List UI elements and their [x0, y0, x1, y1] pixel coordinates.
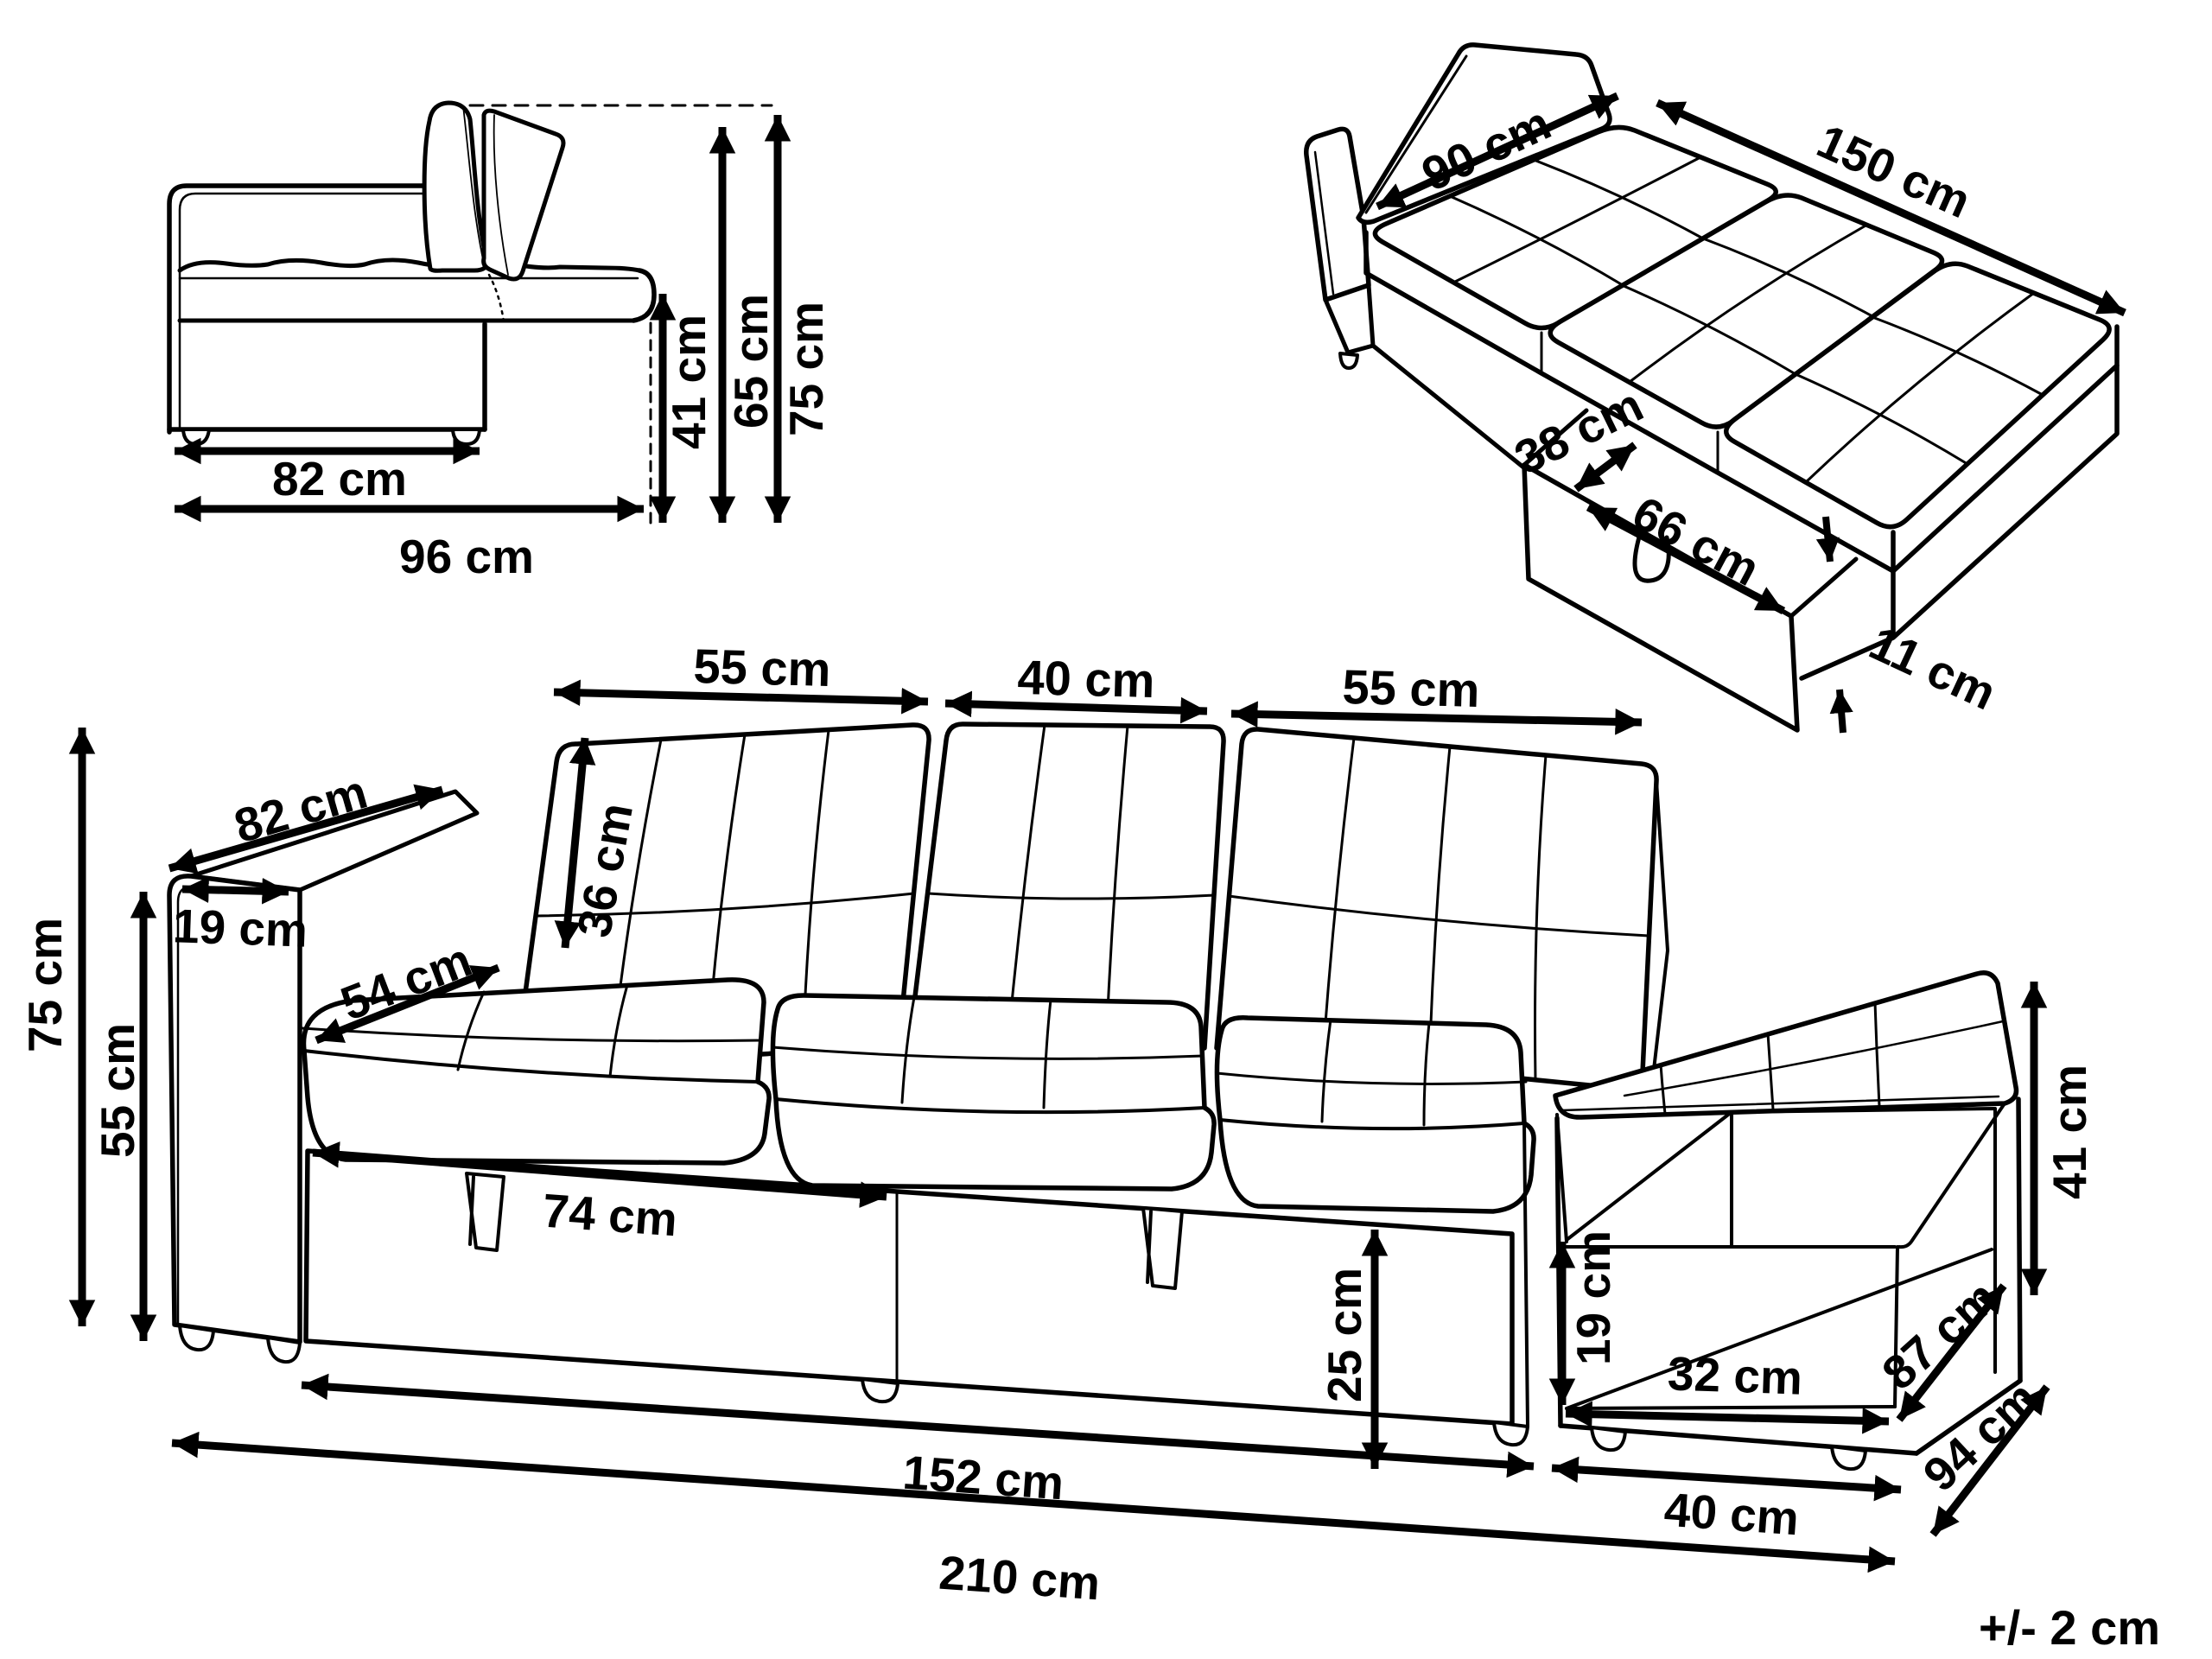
svg-text:75 cm: 75 cm: [18, 918, 72, 1052]
svg-text:+/- 2 cm: +/- 2 cm: [1979, 1600, 2160, 1655]
svg-text:55 cm: 55 cm: [693, 639, 831, 696]
svg-text:41 cm: 41 cm: [662, 315, 715, 449]
svg-text:152 cm: 152 cm: [901, 1446, 1065, 1510]
svg-text:65 cm: 65 cm: [724, 294, 778, 429]
svg-text:19 cm: 19 cm: [1567, 1230, 1620, 1365]
svg-text:32 cm: 32 cm: [1667, 1346, 1803, 1404]
svg-text:41 cm: 41 cm: [2043, 1065, 2096, 1199]
svg-text:75 cm: 75 cm: [779, 302, 833, 436]
svg-text:74 cm: 74 cm: [541, 1184, 679, 1247]
svg-text:40 cm: 40 cm: [1017, 650, 1155, 708]
svg-text:19 cm: 19 cm: [172, 899, 308, 957]
svg-text:25 cm: 25 cm: [1318, 1268, 1371, 1402]
svg-text:55 cm: 55 cm: [91, 1023, 144, 1158]
svg-text:40 cm: 40 cm: [1662, 1483, 1801, 1546]
svg-text:55 cm: 55 cm: [1342, 659, 1480, 717]
svg-text:82 cm: 82 cm: [272, 452, 407, 505]
svg-text:96 cm: 96 cm: [399, 530, 534, 583]
svg-text:210 cm: 210 cm: [938, 1546, 1102, 1611]
